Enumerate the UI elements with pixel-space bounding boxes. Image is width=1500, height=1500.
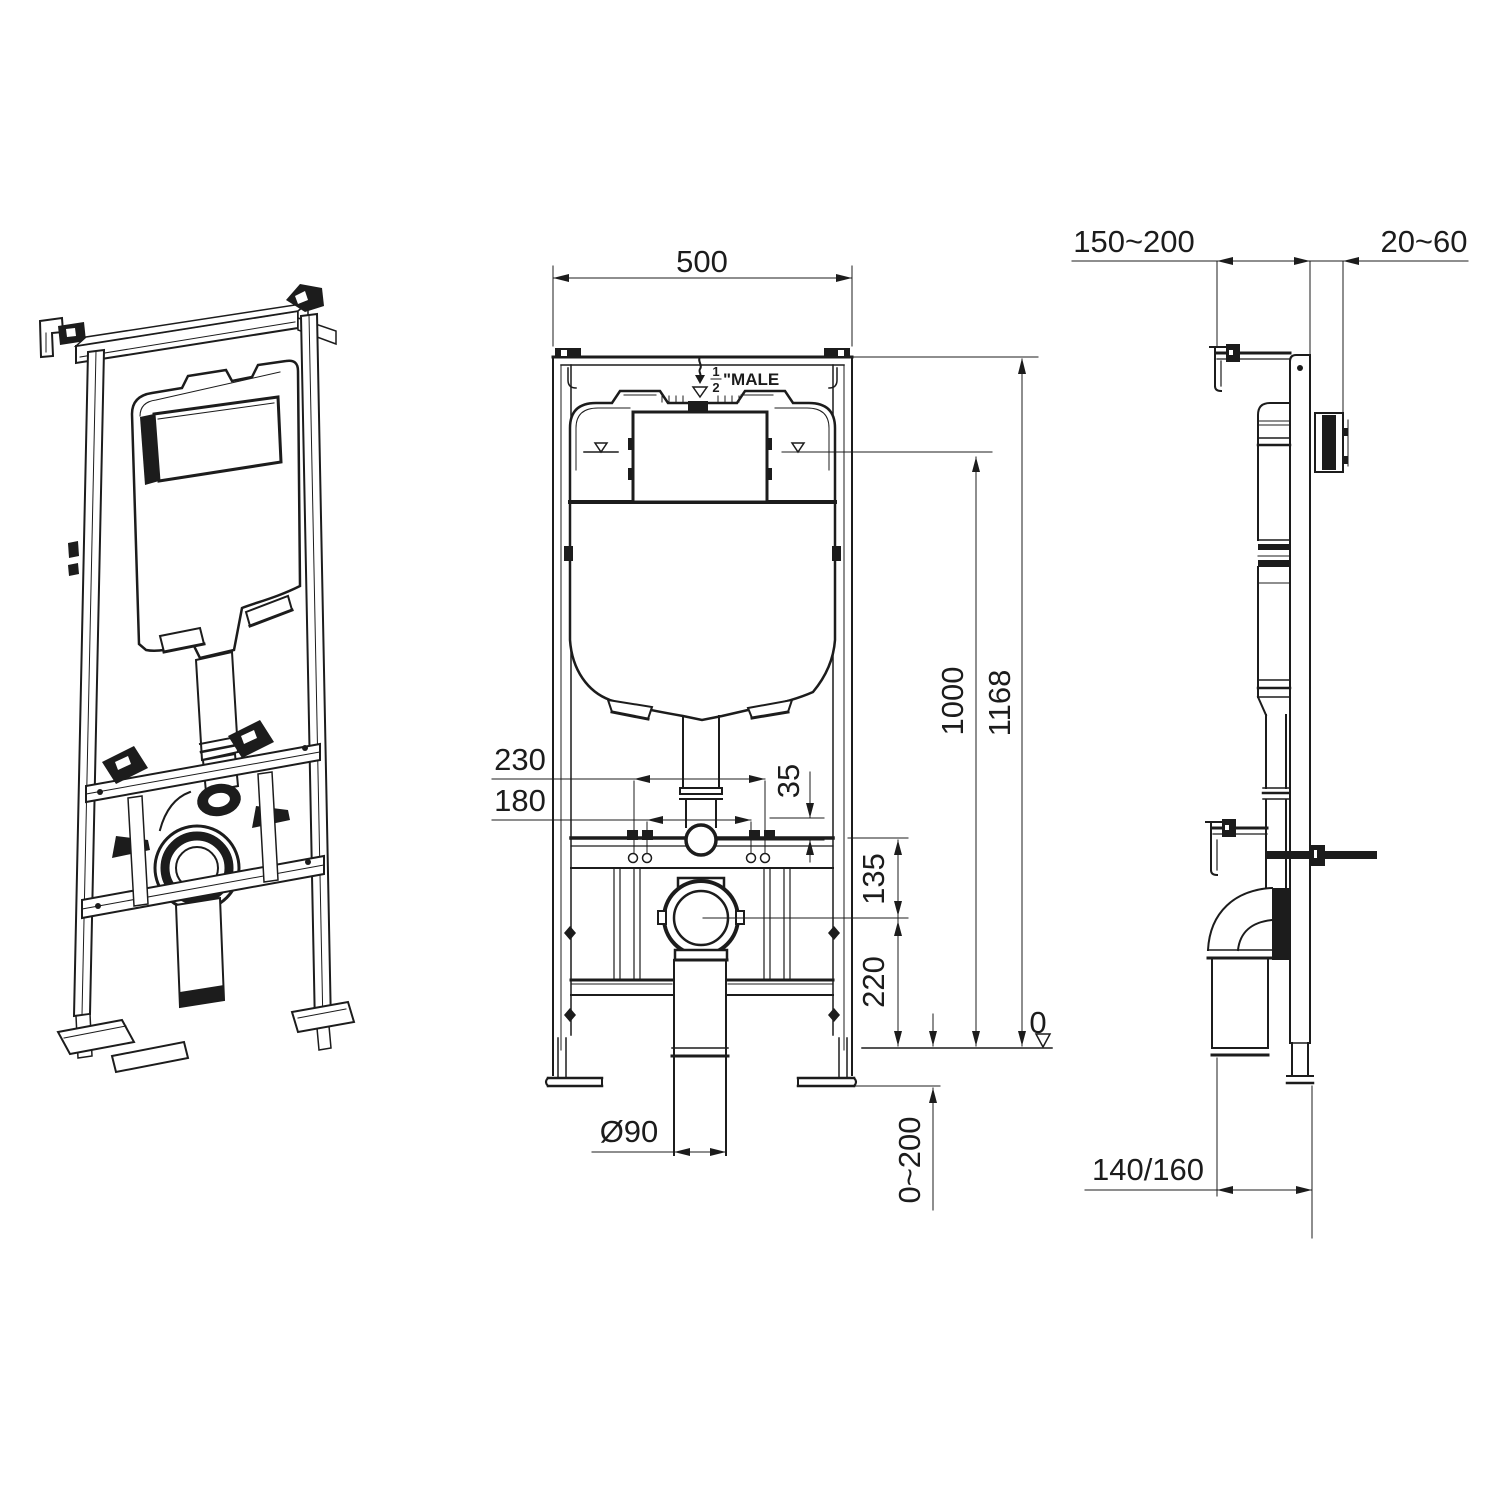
side-view: 150~200 20~60 — [1072, 224, 1468, 1238]
dim-front-drain-height: 220 — [856, 956, 891, 1008]
side-dimension-bottom: 140/160 — [1085, 1058, 1312, 1238]
dim-side-outlet-depth: 140/160 — [1092, 1152, 1204, 1187]
supply-fraction-numerator: 1 — [712, 364, 719, 379]
supply-fraction-denominator: 2 — [712, 380, 719, 395]
dim-front-drain-diameter: Ø90 — [600, 1114, 659, 1149]
isometric-view — [40, 284, 354, 1072]
front-flush-connector — [686, 825, 716, 855]
supply-arrow-icon — [693, 357, 707, 397]
dim-front-width: 500 — [676, 244, 728, 279]
front-view: 1 2 "MALE — [492, 244, 1052, 1210]
front-flush-pipe — [629, 716, 770, 863]
dim-side-plate-range: 20~60 — [1380, 224, 1467, 259]
side-flush-plate — [1315, 413, 1348, 472]
dim-front-tank-height: 1000 — [935, 667, 970, 736]
dim-side-wall-range: 150~200 — [1073, 224, 1195, 259]
side-drain-elbow — [1208, 888, 1290, 1055]
dim-front-flush-to-drain: 135 — [856, 853, 891, 905]
side-upper-wall-bracket — [1210, 344, 1290, 391]
dim-front-inlet-offset: 35 — [771, 764, 806, 798]
drawing-sheet: 1 2 "MALE — [0, 0, 1500, 1500]
iso-top-crossbar — [76, 284, 336, 363]
front-feet — [546, 1038, 856, 1086]
dim-front-spacing-inner: 180 — [494, 783, 546, 818]
iso-right-rail — [301, 314, 331, 1028]
iso-feet — [58, 1002, 354, 1072]
front-drain-elbow — [658, 878, 744, 960]
dim-front-total-height: 1168 — [982, 670, 1017, 737]
dim-front-foot-range: 0~200 — [892, 1116, 927, 1203]
side-frame-rail — [1287, 355, 1313, 1083]
side-cistern — [1258, 403, 1290, 888]
side-lower-wall-bracket — [1206, 819, 1267, 875]
dim-front-spacing-outer: 230 — [494, 742, 546, 777]
side-dimensions-top: 150~200 20~60 — [1072, 224, 1468, 412]
iso-outlet-pipe — [176, 898, 224, 1007]
front-outlet-pipe — [672, 960, 728, 1155]
front-lower-rail — [571, 980, 833, 995]
front-cistern — [564, 391, 992, 720]
iso-cistern — [132, 361, 300, 658]
front-access-panel — [633, 412, 767, 502]
technical-drawing: 1 2 "MALE — [0, 0, 1500, 1500]
side-pan-fixing-stud — [1267, 845, 1377, 866]
supply-label: "MALE — [723, 370, 779, 389]
